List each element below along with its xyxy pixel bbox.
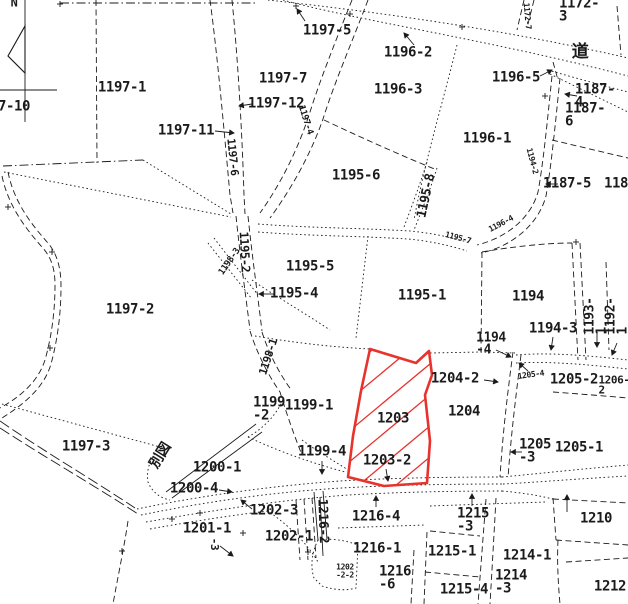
boundary-line: [283, 0, 628, 76]
boundary-line: [411, 550, 414, 604]
boundary-line: [430, 531, 480, 536]
boundary-line: [210, 0, 233, 213]
boundary-line: [477, 76, 552, 245]
boundary-line: [172, 432, 262, 498]
boundary-line: [425, 572, 480, 577]
boundary-line: [606, 262, 609, 350]
boundary-line: [482, 243, 572, 252]
survey-tick: [57, 1, 63, 7]
boundary-line: [572, 243, 578, 360]
boundary-line: [500, 352, 513, 477]
leader-arrow-icon: [239, 103, 252, 108]
boundary-line: [478, 499, 486, 604]
leader-arrow-icon: [404, 33, 414, 45]
boundary-line: [414, 45, 457, 220]
boundary-line: [248, 437, 345, 472]
survey-tick: [197, 510, 203, 516]
boundary-line: [424, 532, 427, 604]
boundary-line: [0, 428, 138, 514]
boundary-line: [258, 224, 470, 243]
boundary-line: [430, 502, 545, 506]
boundary-line: [556, 540, 628, 545]
boundary-line: [260, 0, 352, 213]
leader-arrow-icon: [540, 70, 552, 76]
boundary-line: [304, 499, 308, 560]
boundary-line: [252, 280, 330, 330]
leader-arrow-icon: [220, 546, 233, 556]
boundary-line: [4, 172, 231, 217]
survey-tick: [459, 24, 465, 30]
boundary-line: [270, 0, 368, 218]
leader-arrow-icon: [484, 379, 498, 384]
boundary-line: [481, 78, 560, 253]
boundary-line: [404, 162, 427, 227]
boundary-line: [617, 6, 621, 55]
boundary-line: [312, 539, 358, 590]
boundary-line: [296, 500, 300, 560]
boundary-line: [0, 421, 135, 508]
survey-tick: [49, 249, 55, 255]
boundary-line: [255, 336, 370, 349]
boundary-line: [553, 392, 628, 398]
leader-arrow-icon: [297, 9, 305, 21]
boundary-line: [338, 525, 425, 528]
cadastral-map: N7-101197-11197-111197-121197-71197-5119…: [0, 0, 628, 604]
leader-arrow-icon: [259, 291, 274, 296]
boundary-line: [516, 354, 628, 360]
leader-arrow-icon: [319, 461, 324, 474]
boundary-line: [248, 400, 283, 437]
survey-tick: [573, 239, 579, 245]
parcel-linework: [0, 0, 628, 604]
boundary-line: [553, 498, 556, 540]
boundary-line: [490, 498, 496, 604]
boundary-line: [323, 491, 327, 539]
leader-arrow-icon: [549, 337, 554, 350]
survey-tick: [119, 548, 125, 554]
boundary-line: [2, 172, 61, 418]
survey-tick: [169, 516, 175, 522]
leader-arrow-icon: [385, 469, 390, 481]
boundary-line: [320, 497, 323, 556]
leader-arrow-icon: [219, 489, 232, 494]
boundary-line: [113, 521, 128, 604]
boundary-line: [324, 120, 437, 170]
leader-arrow-icon: [241, 500, 252, 509]
boundary-line: [141, 484, 503, 515]
boundary-line: [314, 492, 318, 540]
boundary-line: [258, 232, 467, 251]
survey-tick: [5, 204, 11, 210]
boundary-line: [280, 392, 302, 455]
boundary-line: [302, 440, 348, 470]
leader-arrow-icon: [496, 350, 511, 357]
boundary-line: [236, 216, 250, 330]
boundary-line: [150, 511, 318, 562]
boundary-line: [262, 332, 292, 391]
leader-arrow-icon: [565, 92, 577, 97]
boundary-line: [250, 331, 280, 392]
boundary-line: [166, 424, 256, 492]
boundary-line: [558, 540, 560, 604]
boundary-line: [268, 0, 628, 58]
survey-tick: [240, 530, 246, 536]
leader-arrow-icon: [373, 496, 378, 507]
boundary-line: [566, 558, 628, 562]
survey-tick: [47, 345, 53, 351]
leader-arrow-icon: [519, 363, 528, 371]
survey-tick: [347, 11, 353, 17]
boundary-line: [516, 362, 628, 369]
boundary-line: [552, 140, 628, 158]
survey-tick: [542, 93, 548, 99]
boundary-line: [414, 168, 437, 230]
survey-tick: [293, 3, 299, 9]
leader-arrow-icon: [564, 495, 569, 512]
boundary-line: [3, 160, 143, 166]
leader-arrow-icon: [611, 343, 617, 355]
leader-arrow-icon: [594, 333, 599, 347]
boundary-line: [356, 236, 368, 338]
boundary-line: [2, 404, 160, 447]
boundary-line: [143, 160, 231, 214]
boundary-line: [248, 216, 262, 331]
boundary-line: [580, 243, 586, 360]
boundary-line: [503, 476, 628, 484]
north-arrow-icon: [8, 26, 25, 73]
boundary-line: [502, 465, 628, 477]
boundary-line: [553, 62, 558, 80]
boundary-line: [137, 477, 502, 509]
boundary-line: [517, 0, 524, 30]
boundary-line: [0, 176, 55, 408]
boundary-line: [550, 74, 628, 112]
boundary-line: [208, 243, 252, 299]
leader-arrow-icon: [511, 449, 522, 454]
leader-arrow-icon: [469, 494, 474, 506]
boundary-line: [502, 491, 556, 500]
boundary-line: [481, 252, 482, 352]
boundary-line: [96, 0, 97, 163]
boundary-line: [527, 0, 534, 28]
highlight-hatching: [330, 277, 460, 602]
